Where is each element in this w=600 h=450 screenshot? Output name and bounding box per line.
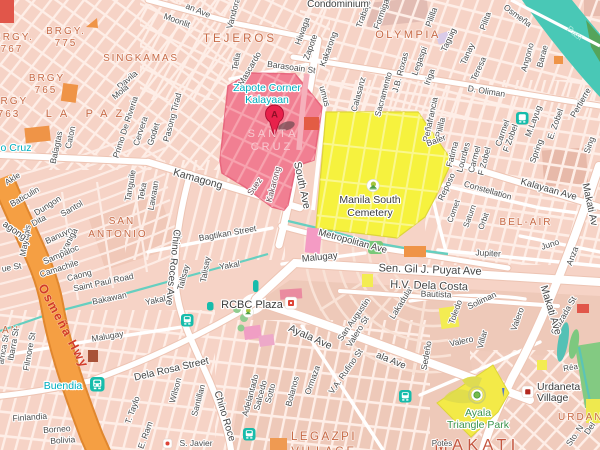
svg-text:Buendia: Buendia [44,380,83,392]
svg-text:767: 767 [1,44,24,55]
svg-text:Village: Village [537,392,568,404]
svg-text:Jupiter: Jupiter [475,247,501,258]
svg-text:Borneo: Borneo [43,423,71,435]
svg-text:S. Javier: S. Javier [179,438,212,448]
svg-text:Kalayaan: Kalayaan [245,94,289,106]
svg-text:BRGY.: BRGY. [0,32,34,43]
svg-text:775: 775 [55,38,78,49]
svg-text:Zapote Corner: Zapote Corner [233,82,301,94]
svg-text:Manila South: Manila South [339,194,400,206]
svg-text:o Cruz: o Cruz [1,142,32,154]
svg-text:TEJEROS: TEJEROS [203,33,277,45]
svg-text:765: 765 [35,85,58,96]
svg-text:763: 763 [0,109,20,120]
svg-text:OLYMPIA: OLYMPIA [375,29,441,41]
svg-text:SINGKAMAS: SINGKAMAS [103,53,179,64]
svg-text:CRUZ: CRUZ [251,141,294,153]
svg-text:Triangle Park: Triangle Park [447,419,510,431]
svg-text:Potes: Potes [432,439,452,448]
svg-text:URDAN: URDAN [558,412,600,423]
svg-text:SAN: SAN [109,216,136,227]
svg-text:Cemetery: Cemetery [347,207,393,219]
svg-text:VILLAGE: VILLAGE [291,446,356,450]
svg-text:ANTONIO: ANTONIO [88,229,147,240]
svg-text:A: A [271,110,278,121]
svg-text:SANTA: SANTA [248,128,299,140]
svg-text:BRGY: BRGY [29,73,65,84]
svg-text:Condominium: Condominium [307,0,369,10]
svg-text:LEGAZPI: LEGAZPI [291,431,357,443]
svg-text:Ayala: Ayala [465,407,491,419]
svg-text:BRGY: BRGY [0,96,28,107]
svg-text:RCBC Plaza: RCBC Plaza [221,299,284,311]
svg-text:BEL-AIR: BEL-AIR [500,217,553,228]
svg-text:LA PAZ: LA PAZ [46,108,130,120]
svg-text:Bolivia: Bolivia [50,434,76,446]
svg-text:BRGY.: BRGY. [46,26,86,37]
